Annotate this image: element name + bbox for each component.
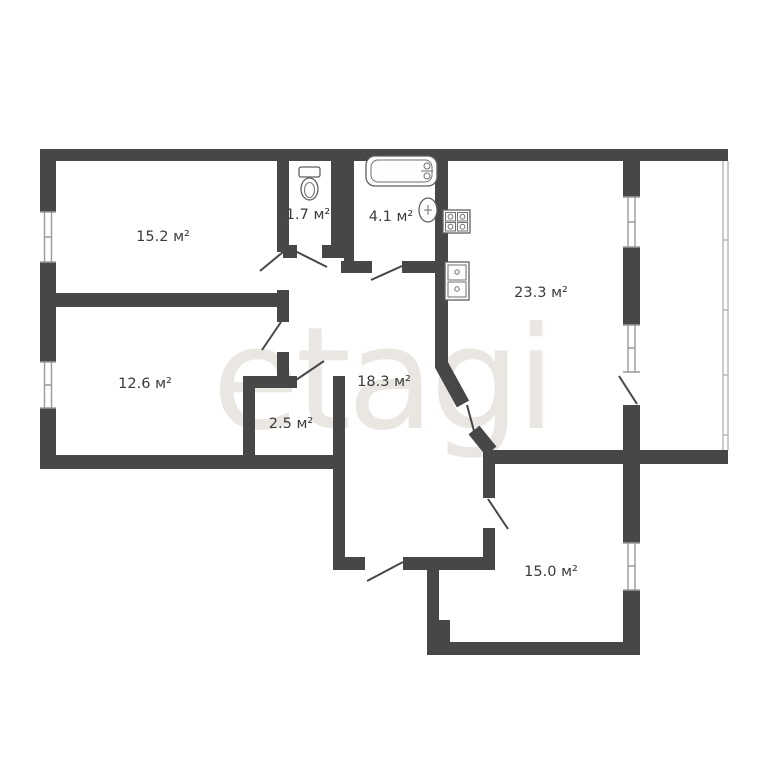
wall-segment <box>435 149 448 367</box>
wall-segment <box>333 557 365 570</box>
wall-segment <box>487 450 728 464</box>
wall-segment <box>623 149 640 197</box>
wall-segment <box>427 557 439 655</box>
room-label-12-6: 12.6 м² <box>118 376 172 392</box>
wall-segment <box>344 149 354 273</box>
bathtub-icon <box>366 156 437 186</box>
wall-segment <box>623 450 640 543</box>
door-balcony <box>619 376 637 404</box>
kitchen-sink-icon <box>445 262 469 300</box>
door-bathroom <box>371 266 402 280</box>
stove-icon <box>443 210 470 233</box>
room-label-storage: 2.5 м² <box>269 416 313 432</box>
wall-segment <box>623 247 640 325</box>
toilet-icon <box>299 167 320 200</box>
wall-segment <box>40 293 289 307</box>
room-label-kitchen: 23.3 м² <box>514 285 568 301</box>
wall-segment <box>40 455 345 469</box>
wall-segment <box>333 376 345 570</box>
room-label-bathroom: 4.1 м² <box>369 209 413 225</box>
door-room-15-0 <box>488 499 508 529</box>
room-label-15-2: 15.2 м² <box>136 229 190 245</box>
washbasin-icon <box>419 198 437 222</box>
room-label-hallway: 18.3 м² <box>357 374 411 390</box>
window <box>40 362 56 408</box>
wall-segment <box>40 149 56 469</box>
window <box>623 197 640 247</box>
floor-plan-canvas: etagi <box>0 0 768 768</box>
wall-segment <box>277 290 289 322</box>
room-label-15-0: 15.0 м² <box>524 564 578 580</box>
wall-segment <box>427 642 640 655</box>
wall-segment <box>341 261 372 273</box>
balcony-glazing <box>723 161 728 450</box>
floor-plan-drawing: etagi <box>0 0 768 768</box>
door-room-15-2 <box>260 252 283 271</box>
window <box>623 325 640 372</box>
wall-segment <box>331 149 344 258</box>
wall-segment <box>403 557 490 570</box>
room-label-wc: 1.7 м² <box>286 207 330 223</box>
window <box>623 543 640 590</box>
wall-segment <box>483 451 495 498</box>
door-entrance <box>367 562 403 581</box>
window <box>40 212 56 262</box>
wall-segment <box>243 376 255 455</box>
wall-segment <box>277 149 289 252</box>
wall-segment <box>623 405 640 450</box>
